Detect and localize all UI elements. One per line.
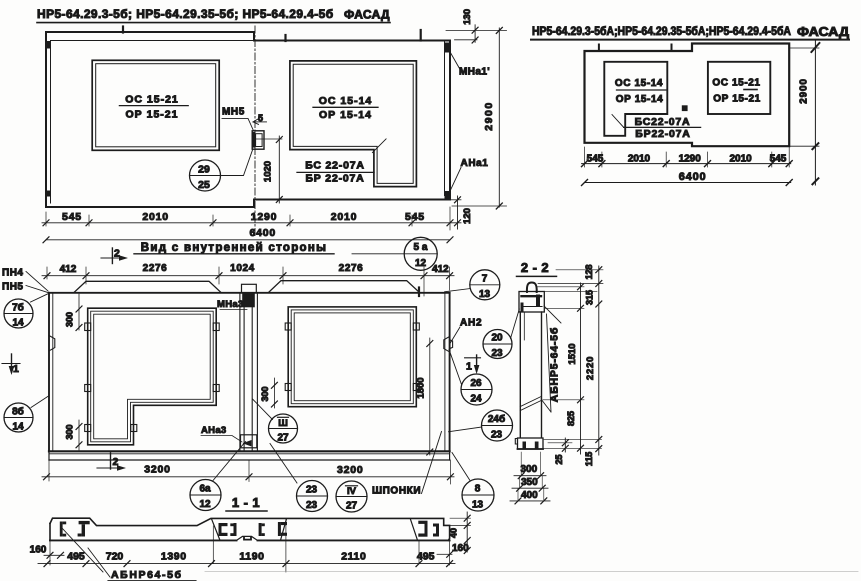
svg-text:ОР 15-21: ОР 15-21 bbox=[713, 94, 761, 105]
svg-text:23: 23 bbox=[306, 485, 318, 496]
svg-text:720: 720 bbox=[106, 551, 124, 563]
svg-text:1800: 1800 bbox=[415, 377, 426, 398]
svg-text:545: 545 bbox=[770, 154, 787, 165]
svg-text:1390: 1390 bbox=[161, 551, 187, 563]
svg-text:ФАСАД: ФАСАД bbox=[344, 8, 390, 22]
svg-text:545: 545 bbox=[405, 211, 425, 223]
svg-text:2900: 2900 bbox=[799, 78, 810, 103]
svg-text:29: 29 bbox=[198, 164, 210, 176]
svg-text:1020: 1020 bbox=[263, 161, 274, 182]
svg-text:ШПОНКИ: ШПОНКИ bbox=[372, 486, 421, 497]
svg-text:300: 300 bbox=[65, 312, 75, 327]
svg-text:20: 20 bbox=[491, 333, 503, 344]
svg-text:ОС 15-14: ОС 15-14 bbox=[319, 95, 373, 107]
svg-text:Ш: Ш bbox=[278, 418, 288, 429]
svg-text:1190: 1190 bbox=[239, 550, 264, 562]
svg-text:160: 160 bbox=[30, 544, 47, 555]
svg-text:2: 2 bbox=[113, 456, 119, 468]
svg-text:МНа3: МНа3 bbox=[217, 299, 244, 310]
svg-text:2010: 2010 bbox=[729, 154, 752, 165]
svg-text:40: 40 bbox=[449, 528, 459, 538]
svg-text:ОР 15-14: ОР 15-14 bbox=[616, 94, 664, 105]
svg-text:2900: 2900 bbox=[483, 101, 495, 130]
svg-text:АБНР64-5б: АБНР64-5б bbox=[111, 569, 183, 581]
svg-text:495: 495 bbox=[417, 550, 435, 562]
svg-text:300: 300 bbox=[260, 386, 270, 401]
svg-text:1290: 1290 bbox=[679, 154, 702, 165]
svg-text:1: 1 bbox=[13, 363, 19, 375]
svg-text:495: 495 bbox=[67, 550, 85, 562]
svg-text:350: 350 bbox=[521, 477, 538, 488]
svg-text:27: 27 bbox=[277, 433, 289, 444]
svg-text:1510: 1510 bbox=[567, 343, 578, 364]
svg-text:2010: 2010 bbox=[628, 154, 651, 165]
svg-text:ОС 15-21: ОС 15-21 bbox=[125, 94, 179, 106]
svg-text:25: 25 bbox=[554, 454, 564, 464]
svg-text:14: 14 bbox=[12, 318, 24, 329]
svg-text:6400: 6400 bbox=[250, 227, 277, 239]
svg-text:2220: 2220 bbox=[585, 356, 596, 380]
svg-text:23: 23 bbox=[491, 348, 503, 359]
svg-text:23: 23 bbox=[491, 430, 503, 441]
svg-text:13: 13 bbox=[472, 500, 484, 511]
svg-text:1-1: 1-1 bbox=[232, 495, 264, 510]
svg-text:ОС 15-21: ОС 15-21 bbox=[712, 78, 760, 89]
svg-text:315: 315 bbox=[584, 290, 594, 305]
svg-text:6400: 6400 bbox=[679, 171, 707, 183]
svg-text:120: 120 bbox=[462, 208, 473, 224]
svg-text:ПН4: ПН4 bbox=[2, 268, 23, 279]
svg-text:8: 8 bbox=[475, 484, 481, 495]
svg-text:7: 7 bbox=[482, 274, 488, 285]
svg-text:НР5-64.29.3-5бА;НР5-64.29.35-5: НР5-64.29.3-5бА;НР5-64.29.35-5бА;НР5-64.… bbox=[532, 26, 791, 38]
svg-text:2010: 2010 bbox=[331, 211, 358, 223]
svg-text:160: 160 bbox=[452, 543, 469, 554]
svg-text:5 а: 5 а bbox=[414, 242, 428, 253]
svg-text:БР22-07А: БР22-07А bbox=[635, 128, 690, 140]
svg-text:115: 115 bbox=[584, 452, 594, 467]
svg-text:МН5: МН5 bbox=[222, 107, 245, 118]
svg-text:130: 130 bbox=[462, 9, 473, 25]
svg-text:26: 26 bbox=[470, 378, 482, 389]
svg-text:7б: 7б bbox=[12, 302, 24, 314]
svg-text:2: 2 bbox=[114, 248, 120, 260]
svg-text:545: 545 bbox=[62, 211, 82, 223]
svg-text:825: 825 bbox=[566, 411, 576, 426]
svg-text:1024: 1024 bbox=[230, 263, 255, 274]
svg-text:БС22-07А: БС22-07А bbox=[635, 116, 691, 128]
svg-text:6а: 6а bbox=[199, 484, 211, 495]
svg-text:13: 13 bbox=[479, 289, 491, 300]
svg-text:БР 22-07А: БР 22-07А bbox=[305, 173, 364, 185]
svg-text:Вид с внутренней стороны: Вид с внутренней стороны bbox=[141, 242, 328, 254]
svg-text:ОР 15-21: ОР 15-21 bbox=[126, 109, 179, 121]
svg-text:2110: 2110 bbox=[341, 551, 366, 563]
svg-text:2010: 2010 bbox=[142, 211, 169, 223]
svg-text:2276: 2276 bbox=[143, 263, 168, 274]
svg-text:128: 128 bbox=[584, 264, 594, 279]
svg-text:24б: 24б bbox=[488, 413, 505, 425]
svg-text:1: 1 bbox=[466, 361, 472, 373]
svg-text:АНа1: АНа1 bbox=[461, 158, 489, 169]
svg-text:НР5-64.29.3-5б; НР5-64.29.35-5: НР5-64.29.3-5б; НР5-64.29.35-5б; НР5-64.… bbox=[37, 7, 334, 21]
svg-text:412: 412 bbox=[432, 264, 449, 275]
svg-text:24: 24 bbox=[470, 394, 482, 405]
svg-text:2276: 2276 bbox=[339, 263, 364, 274]
svg-text:ПН5: ПН5 bbox=[2, 282, 23, 293]
svg-text:8б: 8б bbox=[12, 406, 24, 418]
svg-text:3200: 3200 bbox=[144, 464, 171, 476]
svg-text:МНа1': МНа1' bbox=[459, 67, 490, 78]
svg-text:412: 412 bbox=[60, 264, 77, 275]
svg-text:300: 300 bbox=[65, 424, 75, 439]
svg-text:ОС 15-14: ОС 15-14 bbox=[615, 78, 663, 89]
svg-text:12: 12 bbox=[415, 258, 427, 269]
svg-text:25: 25 bbox=[198, 179, 210, 191]
svg-text:14: 14 bbox=[12, 422, 24, 433]
svg-text:12: 12 bbox=[199, 499, 211, 510]
svg-text:1290: 1290 bbox=[251, 211, 278, 223]
svg-text:545: 545 bbox=[587, 154, 604, 165]
svg-text:АН2: АН2 bbox=[460, 318, 482, 329]
svg-text:ФАСАД: ФАСАД bbox=[797, 25, 849, 39]
svg-text:3200: 3200 bbox=[337, 464, 364, 476]
svg-text:2-2: 2-2 bbox=[521, 260, 553, 275]
svg-text:АНа3: АНа3 bbox=[201, 425, 227, 436]
svg-text:БС 22-07А: БС 22-07А bbox=[305, 160, 365, 172]
svg-text:ОР 15-14: ОР 15-14 bbox=[319, 109, 372, 121]
svg-text:27: 27 bbox=[346, 501, 358, 512]
svg-text:IV: IV bbox=[347, 486, 357, 497]
svg-text:23: 23 bbox=[306, 500, 318, 511]
svg-text:400: 400 bbox=[521, 490, 538, 501]
